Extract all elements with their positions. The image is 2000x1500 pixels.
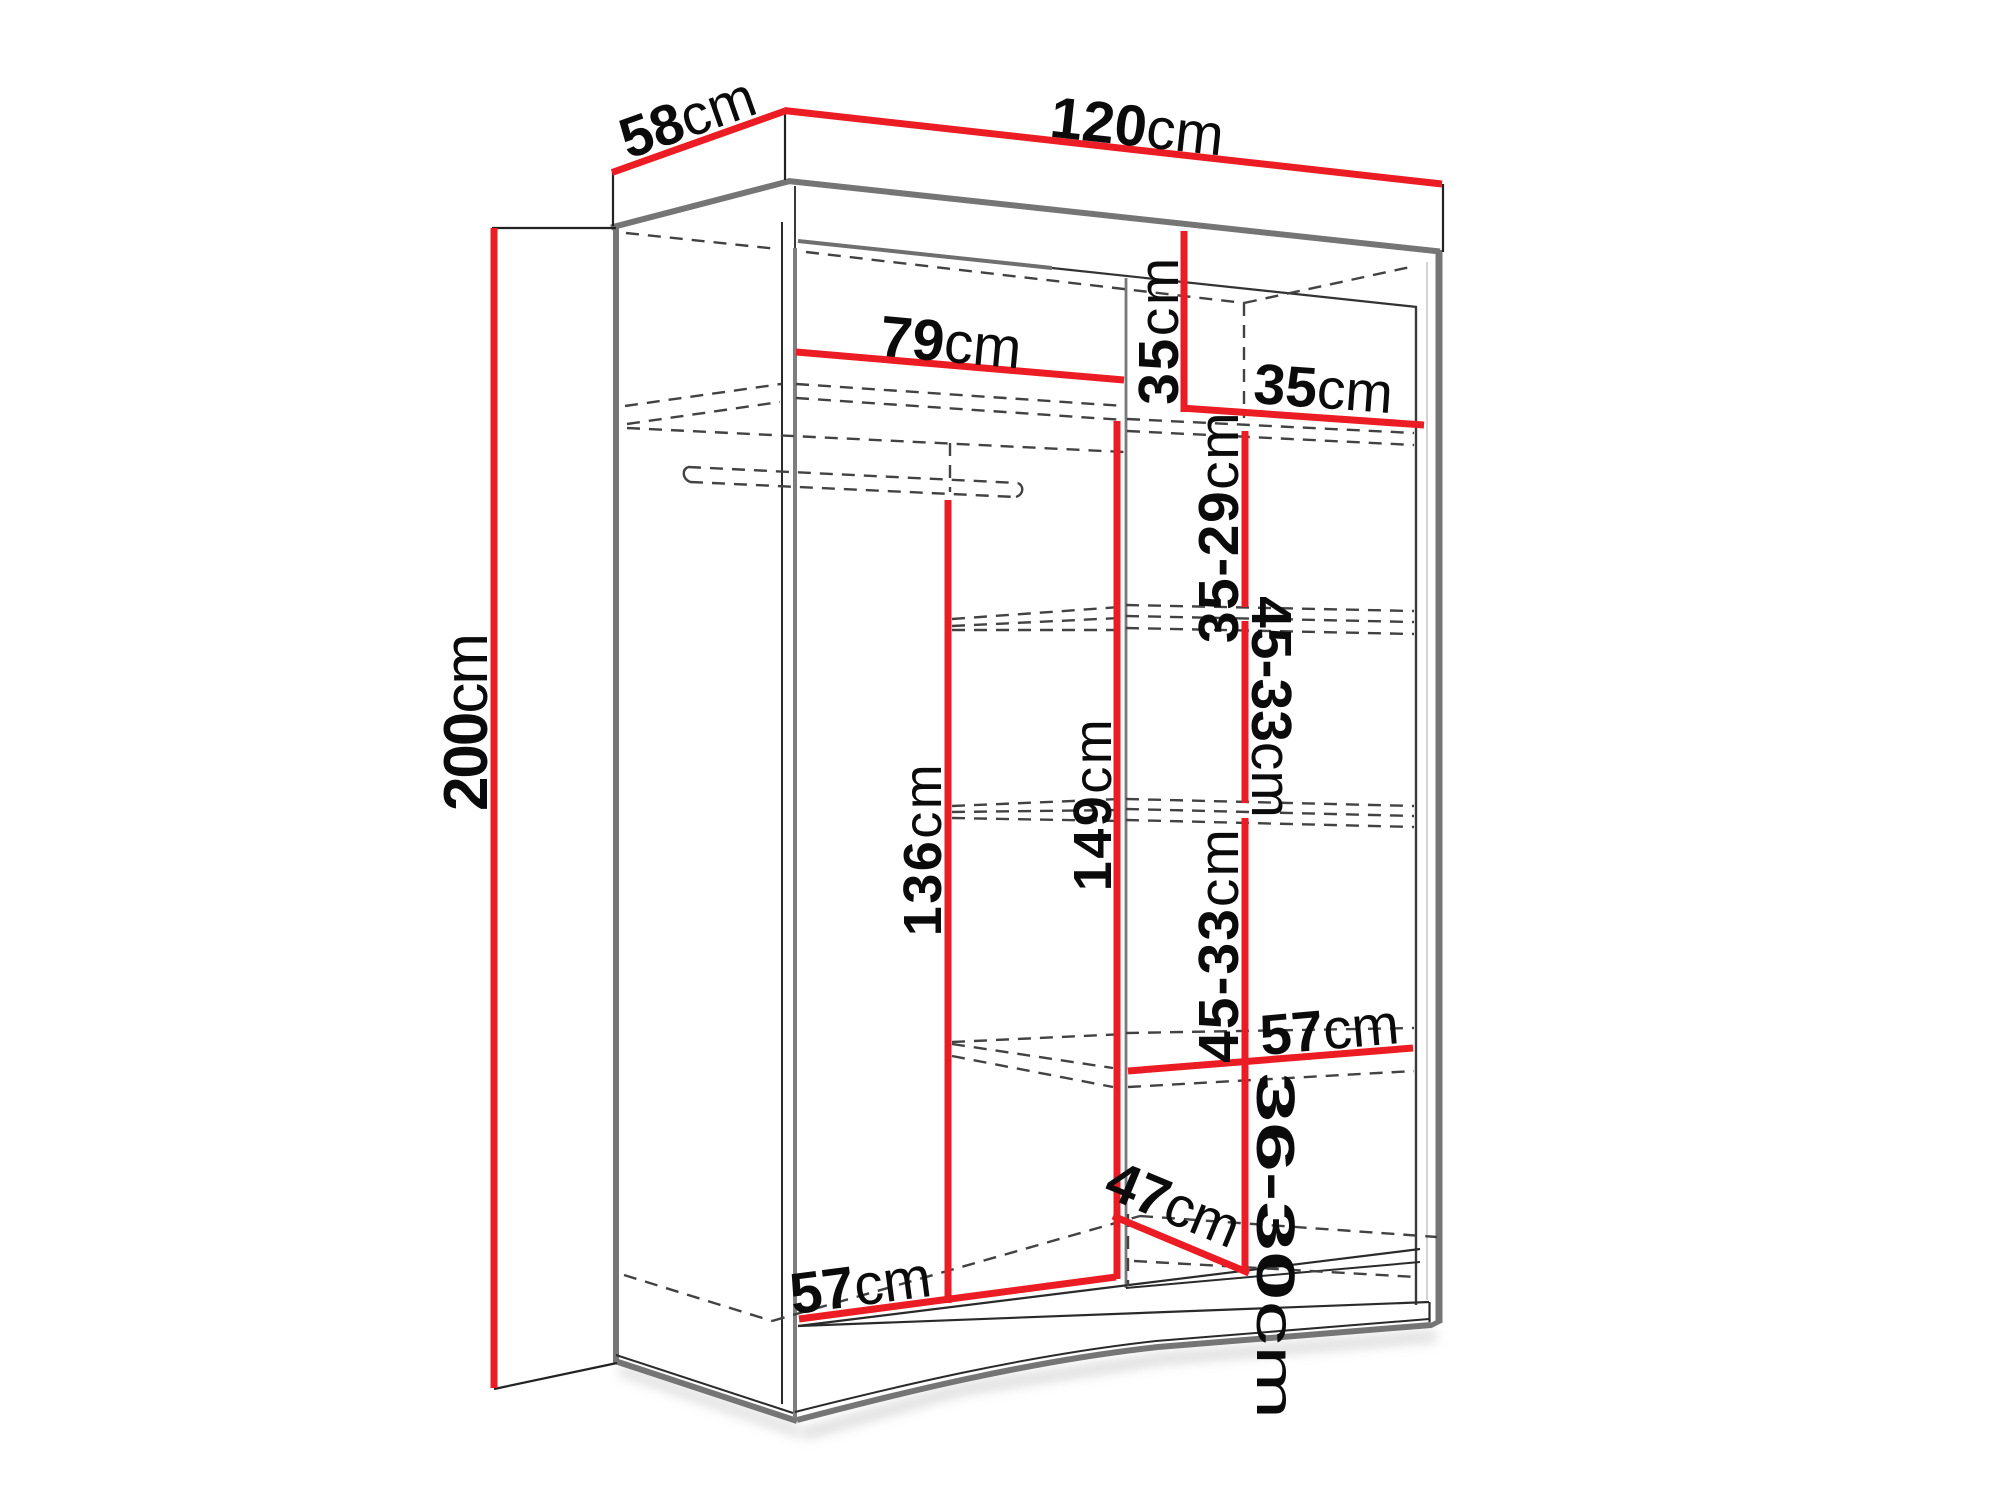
svg-text:35cm: 35cm (1252, 352, 1396, 426)
svg-text:45-33cm: 45-33cm (1187, 827, 1251, 1063)
svg-text:35cm: 35cm (1127, 255, 1191, 404)
svg-text:57cm: 57cm (1257, 992, 1401, 1068)
svg-text:36-30cm: 36-30cm (1245, 1073, 1306, 1420)
svg-text:200cm: 200cm (432, 635, 501, 811)
svg-text:45-33cm: 45-33cm (1239, 596, 1303, 818)
svg-text:79cm: 79cm (877, 304, 1024, 382)
svg-text:149cm: 149cm (1063, 717, 1123, 892)
svg-text:136cm: 136cm (893, 762, 953, 937)
